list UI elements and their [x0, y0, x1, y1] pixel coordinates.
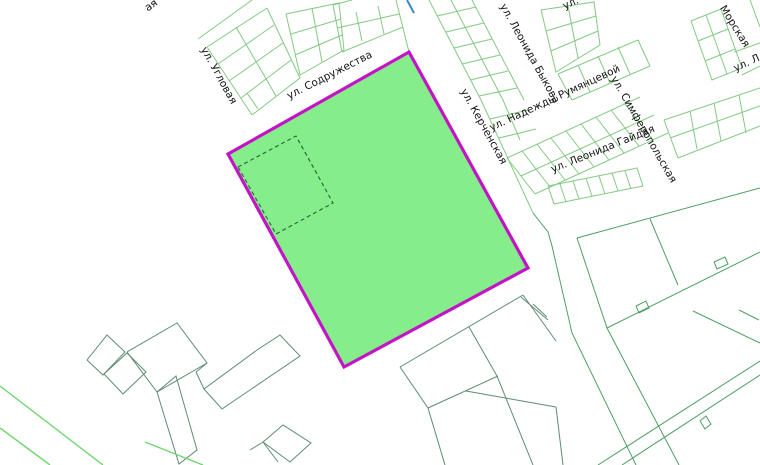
grid-light-line	[560, 184, 566, 202]
outline-dark-line	[521, 297, 548, 320]
bright-lines-line	[0, 386, 103, 465]
grid-light-line	[698, 29, 728, 41]
grid-light-line	[247, 93, 258, 109]
grid-light-line	[333, 5, 342, 52]
grid-light-line	[342, 27, 403, 52]
bright-lines-line	[0, 428, 50, 465]
outline-dark-line	[127, 323, 207, 392]
grid-light-line	[499, 129, 536, 138]
outline-dark-line	[533, 304, 547, 317]
grid-light-line	[312, 8, 322, 62]
layer-parcel-mid	[533, 188, 760, 465]
parcel-mid-line	[607, 252, 760, 328]
parcel-mid-line	[533, 213, 636, 465]
outline-dark-line	[263, 425, 311, 462]
grid-light-line	[638, 40, 650, 66]
grid-light-line	[198, 0, 252, 39]
outline-dark-line	[497, 376, 533, 465]
grid-light-line	[599, 176, 605, 194]
grid-light-line	[586, 178, 592, 196]
parcel-mid-line	[577, 188, 760, 238]
grid-light-line	[664, 88, 760, 120]
outline-dark-line	[87, 335, 125, 375]
grid-light-line	[573, 181, 579, 199]
grid-light-line	[437, 7, 476, 16]
outline-dark-line	[400, 367, 428, 408]
street-label-9: ул. Л	[732, 52, 760, 74]
map-svg: аяул. Угловаяул. Содружестваул. Керченск…	[0, 0, 760, 465]
street-label-5: ул. Надежды Румянцевой	[488, 63, 622, 134]
grid-light-line	[454, 39, 492, 48]
grid-light-line	[625, 171, 631, 189]
grid-light-line	[568, 6, 578, 58]
outline-dark-line	[466, 391, 556, 407]
grid-light-line	[462, 55, 500, 64]
water-blue-line	[407, 0, 414, 13]
grid-light-line	[507, 158, 535, 194]
parcel-mid-line	[700, 416, 711, 429]
grid-light-line	[333, 0, 352, 5]
street-label-8: Морская	[717, 3, 752, 49]
street-label-10: ул.	[561, 0, 581, 12]
grid-light-line	[446, 23, 484, 32]
parcel-mid-line	[636, 301, 649, 313]
grid-light-line	[522, 151, 550, 187]
grid-light-line	[378, 6, 384, 34]
grid-light-line	[664, 120, 678, 158]
grid-light-line	[705, 49, 735, 61]
grid-light-line	[295, 35, 342, 55]
grid-light-line	[750, 0, 760, 27]
bright-lines-line	[145, 442, 203, 465]
grid-light-line	[548, 168, 643, 204]
outline-dark-line	[469, 327, 497, 376]
grid-light-line	[396, 0, 409, 52]
outline-dark-line	[523, 295, 556, 341]
parcel-mid-line	[739, 310, 759, 320]
layer-water-blue	[407, 0, 414, 13]
outline-dark-line	[428, 408, 445, 465]
grid-light-line	[207, 8, 267, 47]
layer-bright-lines	[0, 386, 203, 465]
grid-light-line	[479, 88, 517, 96]
street-label-0: ая	[143, 0, 160, 14]
outline-dark-line	[428, 376, 498, 408]
outline-dark-line	[204, 335, 300, 409]
grid-light-line	[541, 2, 600, 72]
grid-light-line	[551, 31, 598, 51]
outline-dark-line	[556, 407, 563, 465]
grid-light-line	[612, 173, 618, 191]
grid-light-line	[546, 16, 596, 31]
grid-light-line	[356, 12, 362, 41]
outline-dark-line	[157, 376, 197, 464]
parcel-mid-line	[598, 361, 760, 465]
parcel-mid-line	[650, 219, 678, 285]
map-canvas[interactable]: аяул. Угловаяул. Содружестваул. Керченск…	[0, 0, 760, 465]
grid-light-line	[739, 95, 746, 133]
outline-dark-line	[196, 372, 204, 389]
grid-light-line	[706, 15, 727, 74]
grid-light-line	[286, 3, 344, 75]
outline-dark-line	[196, 363, 207, 372]
parcel-mid-line	[714, 257, 728, 269]
grid-light-line	[267, 8, 300, 78]
parcel-mid-line	[577, 238, 679, 465]
parcel-mid-line	[622, 375, 760, 465]
outline-dark-line	[250, 442, 278, 462]
outline-dark-line	[104, 353, 146, 394]
grid-light-line	[337, 14, 399, 28]
